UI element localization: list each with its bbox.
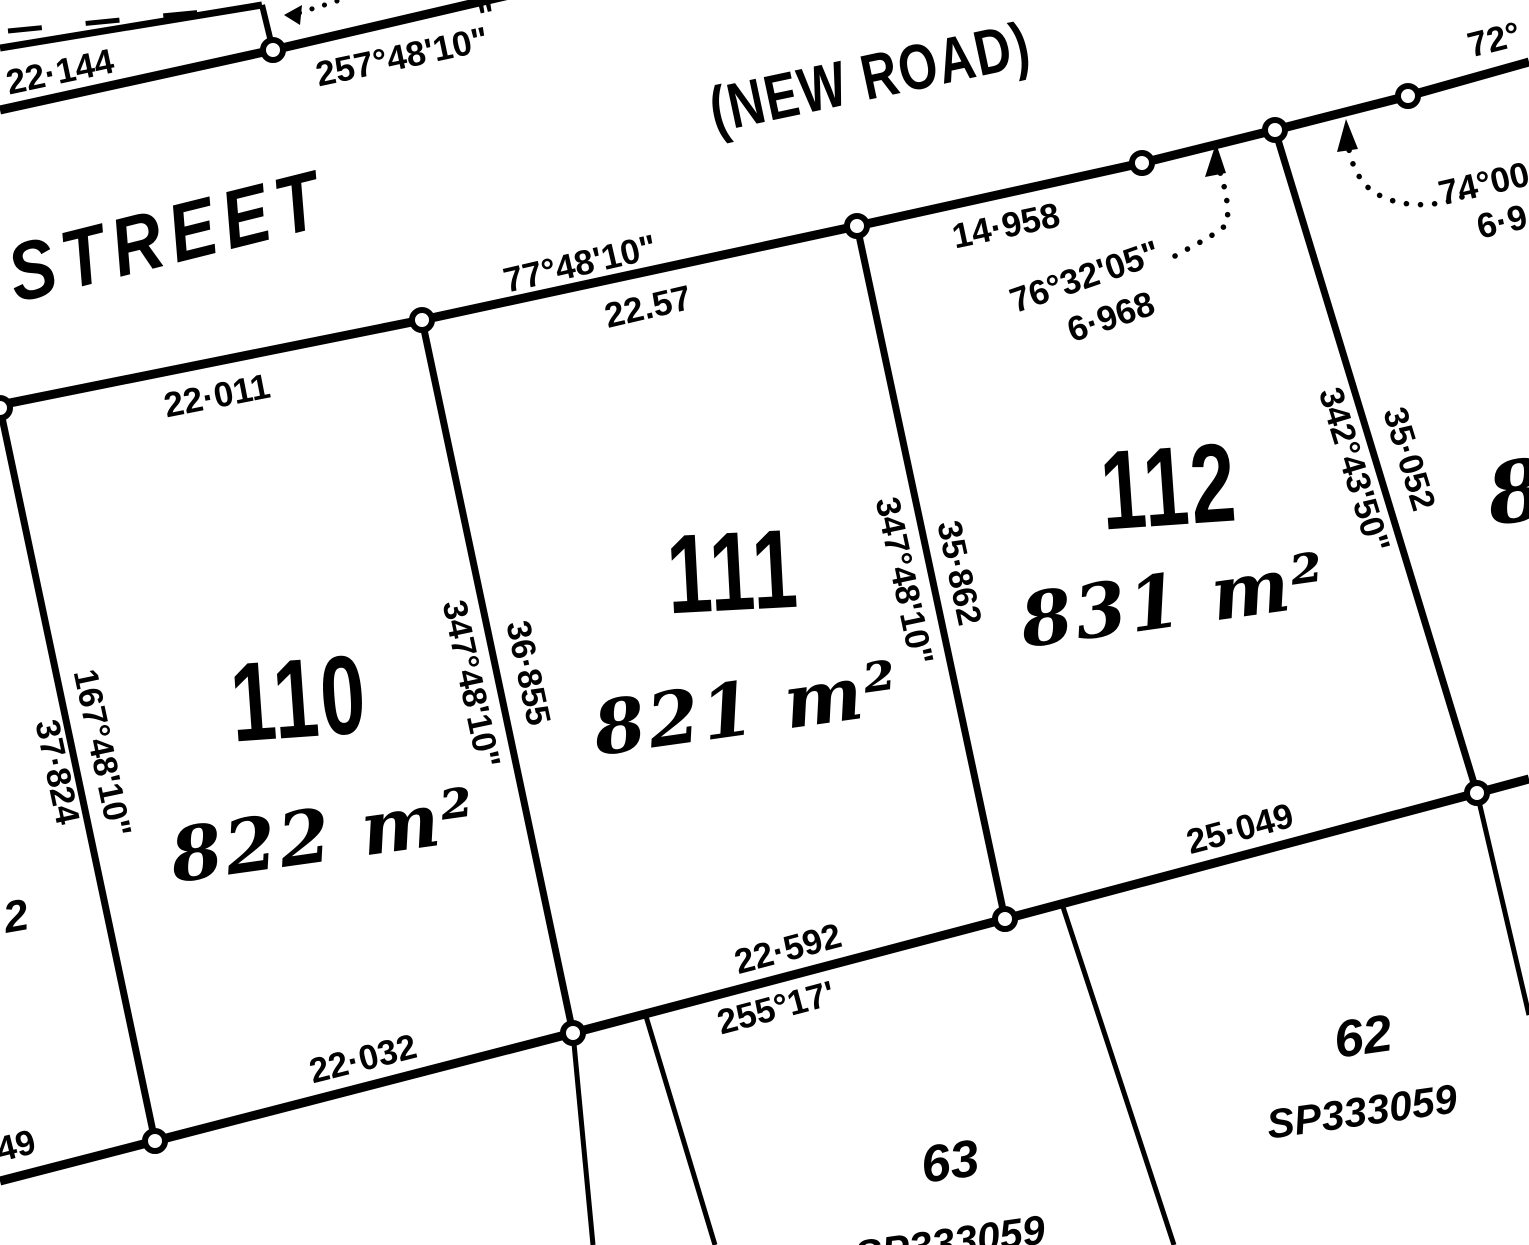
lot-number-110: 110 (227, 638, 371, 759)
boundary-lot63-west (645, 1013, 715, 1245)
top-dotted-leader (299, 1, 337, 13)
top-leader-arrowhead-icon (284, 5, 302, 25)
lot-number-111: 111 (664, 513, 802, 632)
corner-marker (847, 216, 867, 236)
lot-number-62: 62 (1331, 1007, 1396, 1067)
corner-marker (145, 1131, 165, 1151)
corner-marker (1467, 783, 1487, 803)
corner-marker (1398, 86, 1418, 106)
boundary-lot111-lot112 (857, 226, 1005, 919)
boundary-lot110-lot111 (422, 320, 573, 1033)
corner-marker (995, 909, 1015, 929)
survey-plan-canvas: STREET (NEW ROAD) 22·144 257°48'10" " 22… (0, 0, 1529, 1245)
boundary-lot112-east (1275, 130, 1477, 793)
boundary-lot62-east (1477, 793, 1529, 1015)
corner-marker (0, 398, 10, 418)
corner-marker (412, 310, 432, 330)
lot-number-63: 63 (918, 1132, 983, 1192)
boundary-lot63-lot62 (1063, 907, 1174, 1245)
leader-76-32-05 (1175, 160, 1228, 256)
boundary-lot110-west (0, 408, 155, 1141)
lot-number-112: 112 (1097, 426, 1241, 547)
corner-marker (563, 1023, 583, 1043)
corner-marker (1132, 153, 1152, 173)
boundary-lower-lot-a (573, 1033, 593, 1245)
corner-marker (1265, 120, 1285, 140)
leader-74-arrowhead-icon (1337, 119, 1358, 152)
corner-marker (263, 40, 283, 60)
